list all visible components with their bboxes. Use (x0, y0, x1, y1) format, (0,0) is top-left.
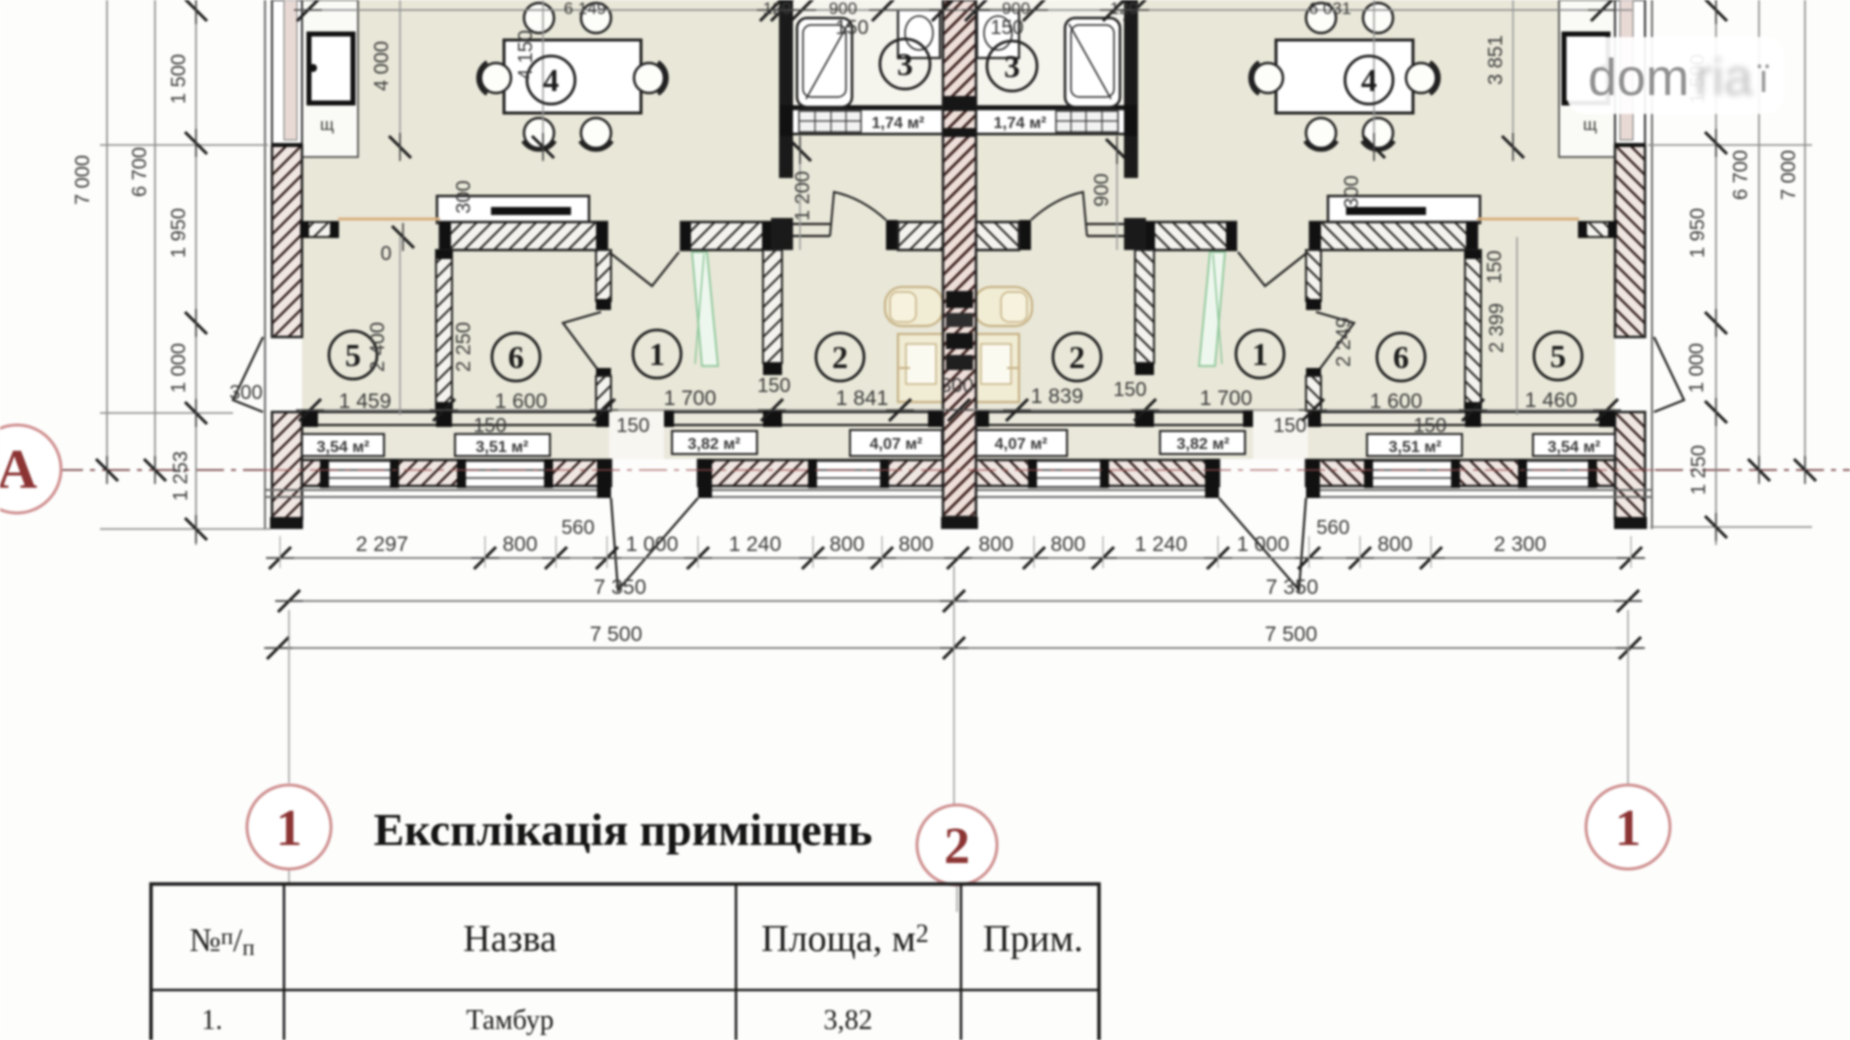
svg-text:300: 300 (940, 375, 973, 397)
svg-text:3,54 м²: 3,54 м² (1548, 439, 1601, 456)
svg-text:щ: щ (320, 115, 334, 134)
svg-text:5: 5 (345, 337, 361, 373)
svg-text:ria: ria (1695, 49, 1753, 107)
svg-text:1.: 1. (202, 1005, 223, 1036)
svg-text:1 950: 1 950 (168, 208, 190, 258)
svg-text:Прим.: Прим. (983, 918, 1083, 960)
svg-text:1 841: 1 841 (836, 387, 889, 410)
svg-text:1,74 м²: 1,74 м² (872, 115, 925, 132)
svg-text:1 600: 1 600 (1370, 390, 1423, 413)
svg-text:6 031: 6 031 (1309, 0, 1352, 18)
svg-text:Тамбур: Тамбур (466, 1005, 554, 1036)
svg-text:3: 3 (1004, 48, 1020, 84)
svg-text:800: 800 (1050, 533, 1085, 556)
svg-text:2 400: 2 400 (367, 322, 389, 372)
svg-text:2 249: 2 249 (1333, 317, 1355, 367)
svg-text:7 500: 7 500 (590, 623, 643, 646)
svg-text:120: 120 (1110, 0, 1138, 18)
svg-text:150: 150 (1273, 415, 1306, 437)
svg-text:300: 300 (1341, 175, 1363, 208)
svg-text:Площа, м2: Площа, м2 (761, 918, 929, 960)
svg-text:7 500: 7 500 (1265, 623, 1318, 646)
svg-text:800: 800 (1377, 533, 1412, 556)
svg-text:1 200: 1 200 (792, 171, 814, 221)
svg-text:1 000: 1 000 (168, 343, 190, 393)
svg-text:800: 800 (978, 533, 1013, 556)
svg-text:5: 5 (1550, 338, 1566, 374)
svg-text:800: 800 (502, 533, 537, 556)
svg-text:А: А (0, 439, 38, 501)
svg-text:150: 150 (1113, 379, 1146, 401)
svg-text:3,82: 3,82 (824, 1005, 873, 1036)
svg-text:Експлікація приміщень: Експлікація приміщень (374, 804, 873, 855)
svg-text:1 700: 1 700 (664, 387, 717, 410)
svg-text:6 149: 6 149 (564, 0, 607, 18)
svg-text:1,74 м²: 1,74 м² (994, 115, 1047, 132)
svg-text:6: 6 (508, 339, 524, 375)
svg-text:1 000: 1 000 (1237, 533, 1290, 556)
svg-text:2: 2 (944, 818, 970, 875)
svg-text:150: 150 (473, 415, 506, 437)
svg-text:560: 560 (561, 517, 594, 539)
svg-text:Назва: Назва (463, 918, 557, 960)
svg-text:150: 150 (616, 415, 649, 437)
svg-text:1: 1 (649, 336, 665, 372)
svg-text:ї: ї (1757, 57, 1769, 101)
svg-text:1 600: 1 600 (495, 390, 548, 413)
svg-text:3,51 м²: 3,51 м² (476, 439, 529, 456)
svg-text:1 839: 1 839 (1031, 385, 1084, 408)
svg-text:7 000: 7 000 (72, 155, 94, 205)
svg-text:0: 0 (380, 243, 391, 265)
svg-text:1 253: 1 253 (170, 451, 192, 501)
svg-text:1: 1 (276, 800, 302, 857)
svg-text:1 700: 1 700 (1200, 387, 1253, 410)
svg-text:150: 150 (990, 17, 1023, 39)
svg-text:2 250: 2 250 (453, 322, 475, 372)
svg-text:dom: dom (1588, 49, 1689, 107)
svg-text:1 460: 1 460 (1525, 389, 1578, 412)
svg-text:3,51 м²: 3,51 м² (1389, 439, 1442, 456)
svg-text:2: 2 (832, 339, 848, 375)
svg-text:4,07 м²: 4,07 м² (995, 436, 1048, 453)
svg-text:4 150: 4 150 (515, 30, 537, 80)
svg-text:2 297: 2 297 (356, 533, 409, 556)
svg-text:150: 150 (757, 375, 790, 397)
svg-text:2 300: 2 300 (1494, 533, 1547, 556)
svg-text:3,82 м²: 3,82 м² (1177, 436, 1230, 453)
svg-text:1: 1 (1615, 800, 1641, 857)
svg-text:900: 900 (1002, 0, 1030, 18)
svg-text:2: 2 (1069, 339, 1085, 375)
svg-text:300: 300 (229, 382, 262, 404)
svg-text:6 700: 6 700 (129, 147, 151, 197)
svg-text:щ: щ (1583, 115, 1597, 134)
svg-text:4 000: 4 000 (371, 41, 393, 91)
svg-text:4: 4 (543, 62, 559, 98)
svg-text:1 950: 1 950 (1687, 208, 1709, 258)
svg-text:7 350: 7 350 (594, 576, 647, 599)
svg-text:150: 150 (1484, 250, 1506, 283)
svg-text:1: 1 (1252, 336, 1268, 372)
svg-text:1 000: 1 000 (626, 533, 679, 556)
svg-text:1 250: 1 250 (1688, 445, 1710, 495)
svg-text:7 350: 7 350 (1266, 576, 1319, 599)
svg-text:1 000: 1 000 (1686, 343, 1708, 393)
svg-text:3: 3 (897, 46, 913, 82)
svg-text:300: 300 (453, 180, 475, 213)
svg-text:1 240: 1 240 (729, 533, 782, 556)
svg-text:6: 6 (1393, 339, 1409, 375)
svg-text:560: 560 (1316, 517, 1349, 539)
svg-text:150: 150 (835, 17, 868, 39)
svg-text:4: 4 (1361, 62, 1377, 98)
svg-text:3,54 м²: 3,54 м² (317, 439, 370, 456)
svg-text:1 240: 1 240 (1135, 533, 1188, 556)
svg-text:4,07 м²: 4,07 м² (870, 436, 923, 453)
svg-text:6 700: 6 700 (1730, 150, 1752, 200)
svg-text:150: 150 (1413, 415, 1446, 437)
svg-text:1 500: 1 500 (168, 54, 190, 104)
svg-text:2 399: 2 399 (1486, 303, 1508, 353)
svg-text:900: 900 (829, 0, 857, 18)
svg-text:120: 120 (763, 0, 791, 18)
svg-text:800: 800 (829, 533, 864, 556)
svg-text:3 851: 3 851 (1485, 35, 1507, 85)
svg-text:800: 800 (898, 533, 933, 556)
svg-text:900: 900 (1091, 173, 1113, 206)
svg-text:3,82 м²: 3,82 м² (688, 436, 741, 453)
svg-text:1 459: 1 459 (339, 390, 392, 413)
svg-text:7 000: 7 000 (1778, 150, 1800, 200)
